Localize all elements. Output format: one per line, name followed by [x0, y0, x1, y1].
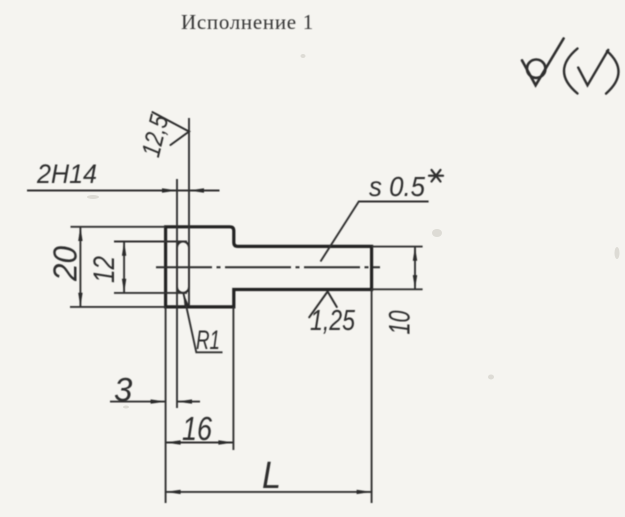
- svg-text:10: 10: [384, 310, 417, 334]
- svg-text:20: 20: [47, 245, 84, 282]
- svg-text:2H14: 2H14: [36, 159, 97, 189]
- svg-text:1,25: 1,25: [310, 305, 356, 337]
- svg-text:R1: R1: [196, 325, 220, 355]
- svg-text:L: L: [262, 455, 281, 497]
- svg-text:3: 3: [114, 371, 133, 408]
- svg-text:Исполнение 1: Исполнение 1: [181, 10, 314, 34]
- svg-text:s 0.5: s 0.5: [369, 171, 425, 202]
- svg-text:16: 16: [182, 410, 213, 447]
- svg-text:12: 12: [88, 256, 121, 283]
